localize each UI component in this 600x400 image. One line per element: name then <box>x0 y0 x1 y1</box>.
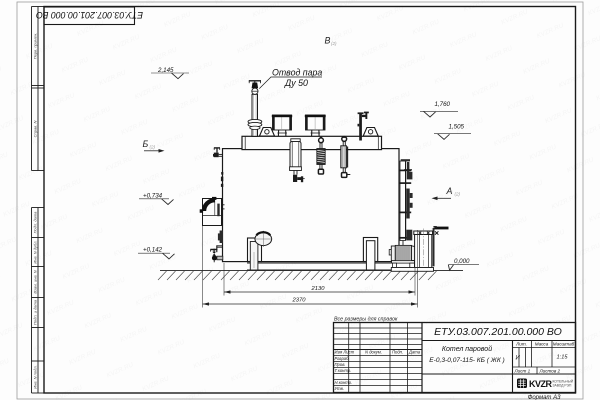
svg-text:А: А <box>446 186 453 196</box>
svg-text:Подп. дата: Подп. дата <box>33 211 38 233</box>
svg-text:0,000: 0,000 <box>454 258 470 265</box>
svg-text:Пров.: Пров. <box>335 362 346 367</box>
svg-text:Разраб.: Разраб. <box>335 356 350 361</box>
svg-text:KVZR: KVZR <box>529 379 553 389</box>
svg-text:Е-0,3-0,07-115- КБ ( ЖК ): Е-0,3-0,07-115- КБ ( ЖК ) <box>429 357 505 364</box>
svg-text:1:15: 1:15 <box>557 355 569 361</box>
svg-text:Листов 2: Листов 2 <box>539 369 561 374</box>
svg-text:Отвод пара: Отвод пара <box>272 68 322 78</box>
svg-text:(2): (2) <box>331 41 337 46</box>
svg-text:Т.контр.: Т.контр. <box>335 368 352 373</box>
svg-text:Утв.: Утв. <box>335 386 345 391</box>
svg-text:ЕТУ.03.007.201.00.000 ВО: ЕТУ.03.007.201.00.000 ВО <box>36 10 143 20</box>
svg-text:Лит.: Лит. <box>515 342 527 347</box>
svg-text:Изм Лист: Изм Лист <box>335 350 355 355</box>
svg-text:Н.контр.: Н.контр. <box>335 380 353 385</box>
svg-text:+0,734: +0,734 <box>143 193 163 200</box>
svg-text:В: В <box>325 36 331 46</box>
svg-text:Инв. N подл.: Инв. N подл. <box>33 365 38 388</box>
svg-text:Инв. N дубл.: Инв. N дубл. <box>33 240 38 263</box>
svg-text:Подп.: Подп. <box>392 350 403 355</box>
svg-text:ЕТУ.03.007.201.00.000 ВО: ЕТУ.03.007.201.00.000 ВО <box>434 326 562 338</box>
svg-text:Дата: Дата <box>408 350 421 355</box>
svg-text:1,505: 1,505 <box>449 124 465 131</box>
svg-text:Масса: Масса <box>535 342 549 347</box>
svg-text:Все размеры для справок: Все размеры для справок <box>334 317 398 323</box>
svg-text:(2): (2) <box>455 192 461 197</box>
svg-text:Б: Б <box>143 139 149 149</box>
svg-text:Ду 50: Ду 50 <box>284 78 308 88</box>
svg-text:Котел паровой: Котел паровой <box>442 345 492 353</box>
svg-text:2130: 2130 <box>311 286 326 292</box>
svg-text:Лист 1: Лист 1 <box>514 369 531 374</box>
svg-text:1,760: 1,760 <box>435 101 451 108</box>
svg-text:Формат А3: Формат А3 <box>528 395 561 400</box>
svg-text:2370: 2370 <box>292 298 307 304</box>
svg-text:И: И <box>516 356 521 362</box>
svg-text:Перв. примен.: Перв. примен. <box>33 33 38 60</box>
svg-text:N докум.: N докум. <box>365 350 382 355</box>
svg-text:+0,142: +0,142 <box>143 247 163 254</box>
svg-text:(2): (2) <box>150 145 156 150</box>
svg-text:Масштаб: Масштаб <box>553 342 575 347</box>
svg-text:Взам. инв. N: Взам. инв. N <box>33 270 38 293</box>
svg-text:Подп. и дата: Подп. и дата <box>33 299 38 325</box>
svg-text:ЗАВОД РЭП: ЗАВОД РЭП <box>553 384 572 388</box>
svg-text:Справ. N: Справ. N <box>33 121 38 138</box>
